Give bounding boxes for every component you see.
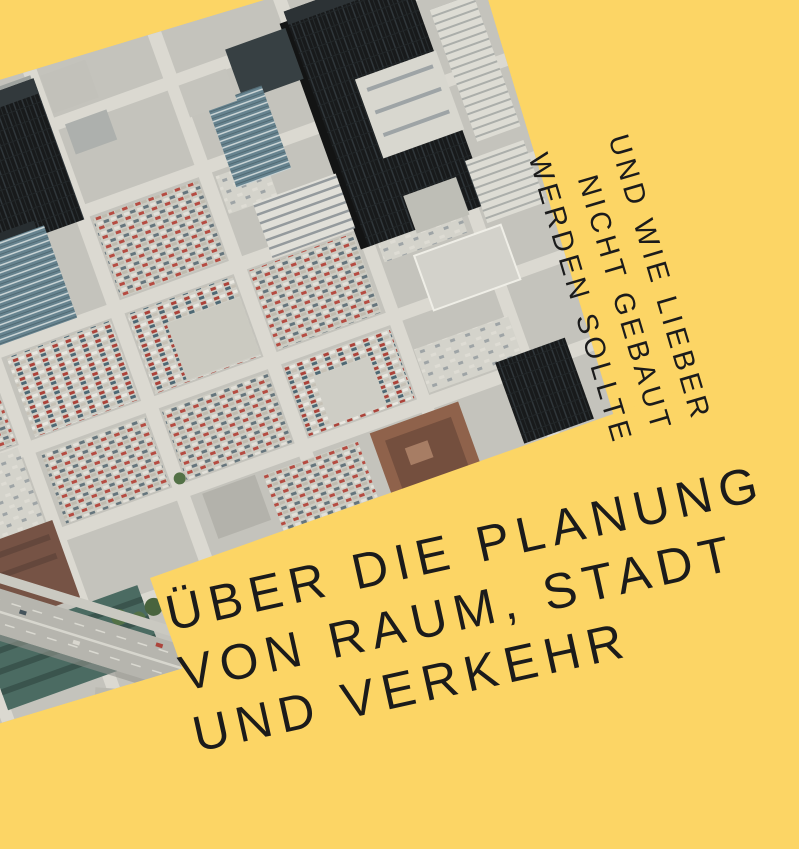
poster: ÜBER DIE PLANUNG VON RAUM, STADT UND VER… — [0, 0, 799, 849]
